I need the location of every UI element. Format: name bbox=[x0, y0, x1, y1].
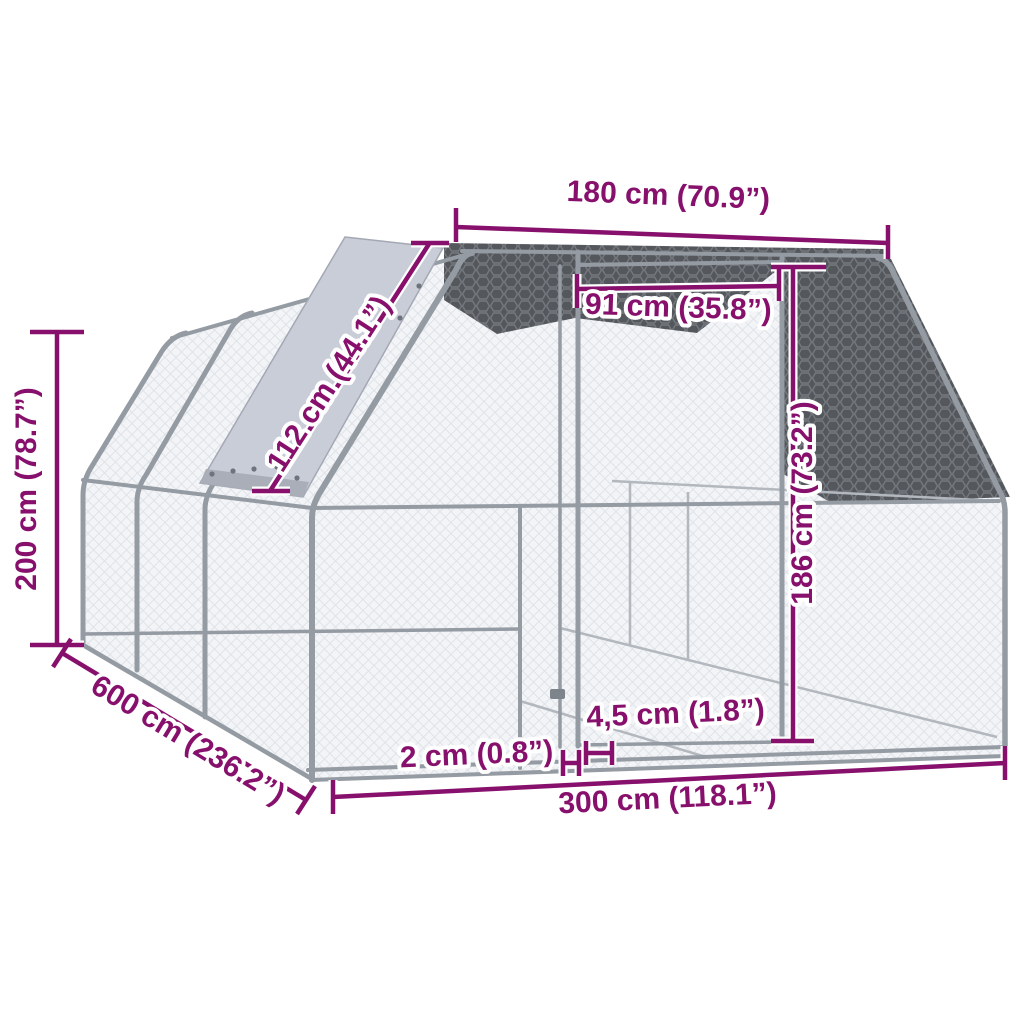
cage-diagram: 180 cm (70.9”) 91 cm (35.8”) 112 cm (44.… bbox=[0, 0, 1024, 1024]
dim-label-door-height: 186 cm (73.2”) bbox=[786, 401, 819, 604]
door-latch bbox=[550, 689, 565, 699]
dim-label-door-width: 91 cm (35.8”) bbox=[584, 288, 772, 327]
dim-label-frame-tube: 2 cm (0.8”) bbox=[399, 735, 554, 775]
product-dimension-diagram: 180 cm (70.9”) 91 cm (35.8”) 112 cm (44.… bbox=[0, 0, 1024, 1024]
dim-label-total-height: 200 cm (78.7”) bbox=[10, 387, 43, 590]
